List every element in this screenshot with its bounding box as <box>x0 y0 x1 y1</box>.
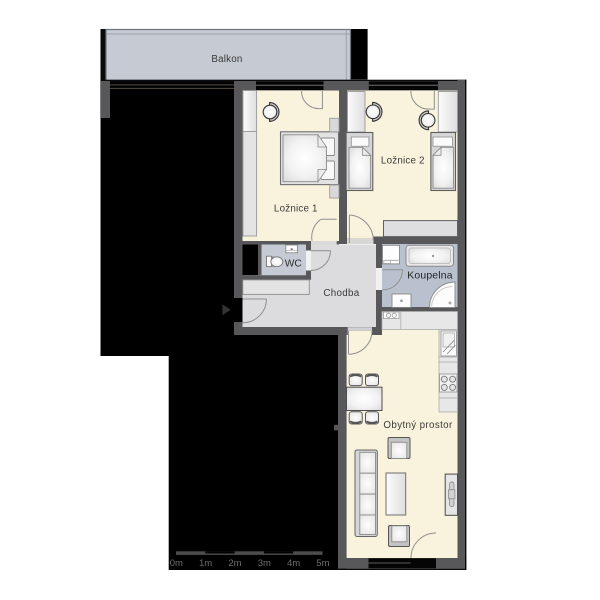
svg-text:Balkon: Balkon <box>211 54 242 65</box>
svg-text:Ložnice 2: Ložnice 2 <box>381 155 425 166</box>
svg-text:1m: 1m <box>199 558 212 569</box>
svg-text:Obytný prostor: Obytný prostor <box>383 420 453 431</box>
svg-text:2m: 2m <box>228 558 241 569</box>
svg-text:Ložnice 1: Ložnice 1 <box>274 204 318 215</box>
svg-text:0m: 0m <box>170 558 183 569</box>
svg-text:3m: 3m <box>258 558 271 569</box>
svg-text:5m: 5m <box>316 558 329 569</box>
svg-text:WC: WC <box>285 258 302 269</box>
svg-text:4m: 4m <box>287 558 300 569</box>
svg-text:Koupelna: Koupelna <box>407 271 453 282</box>
svg-text:Chodba: Chodba <box>323 288 359 299</box>
